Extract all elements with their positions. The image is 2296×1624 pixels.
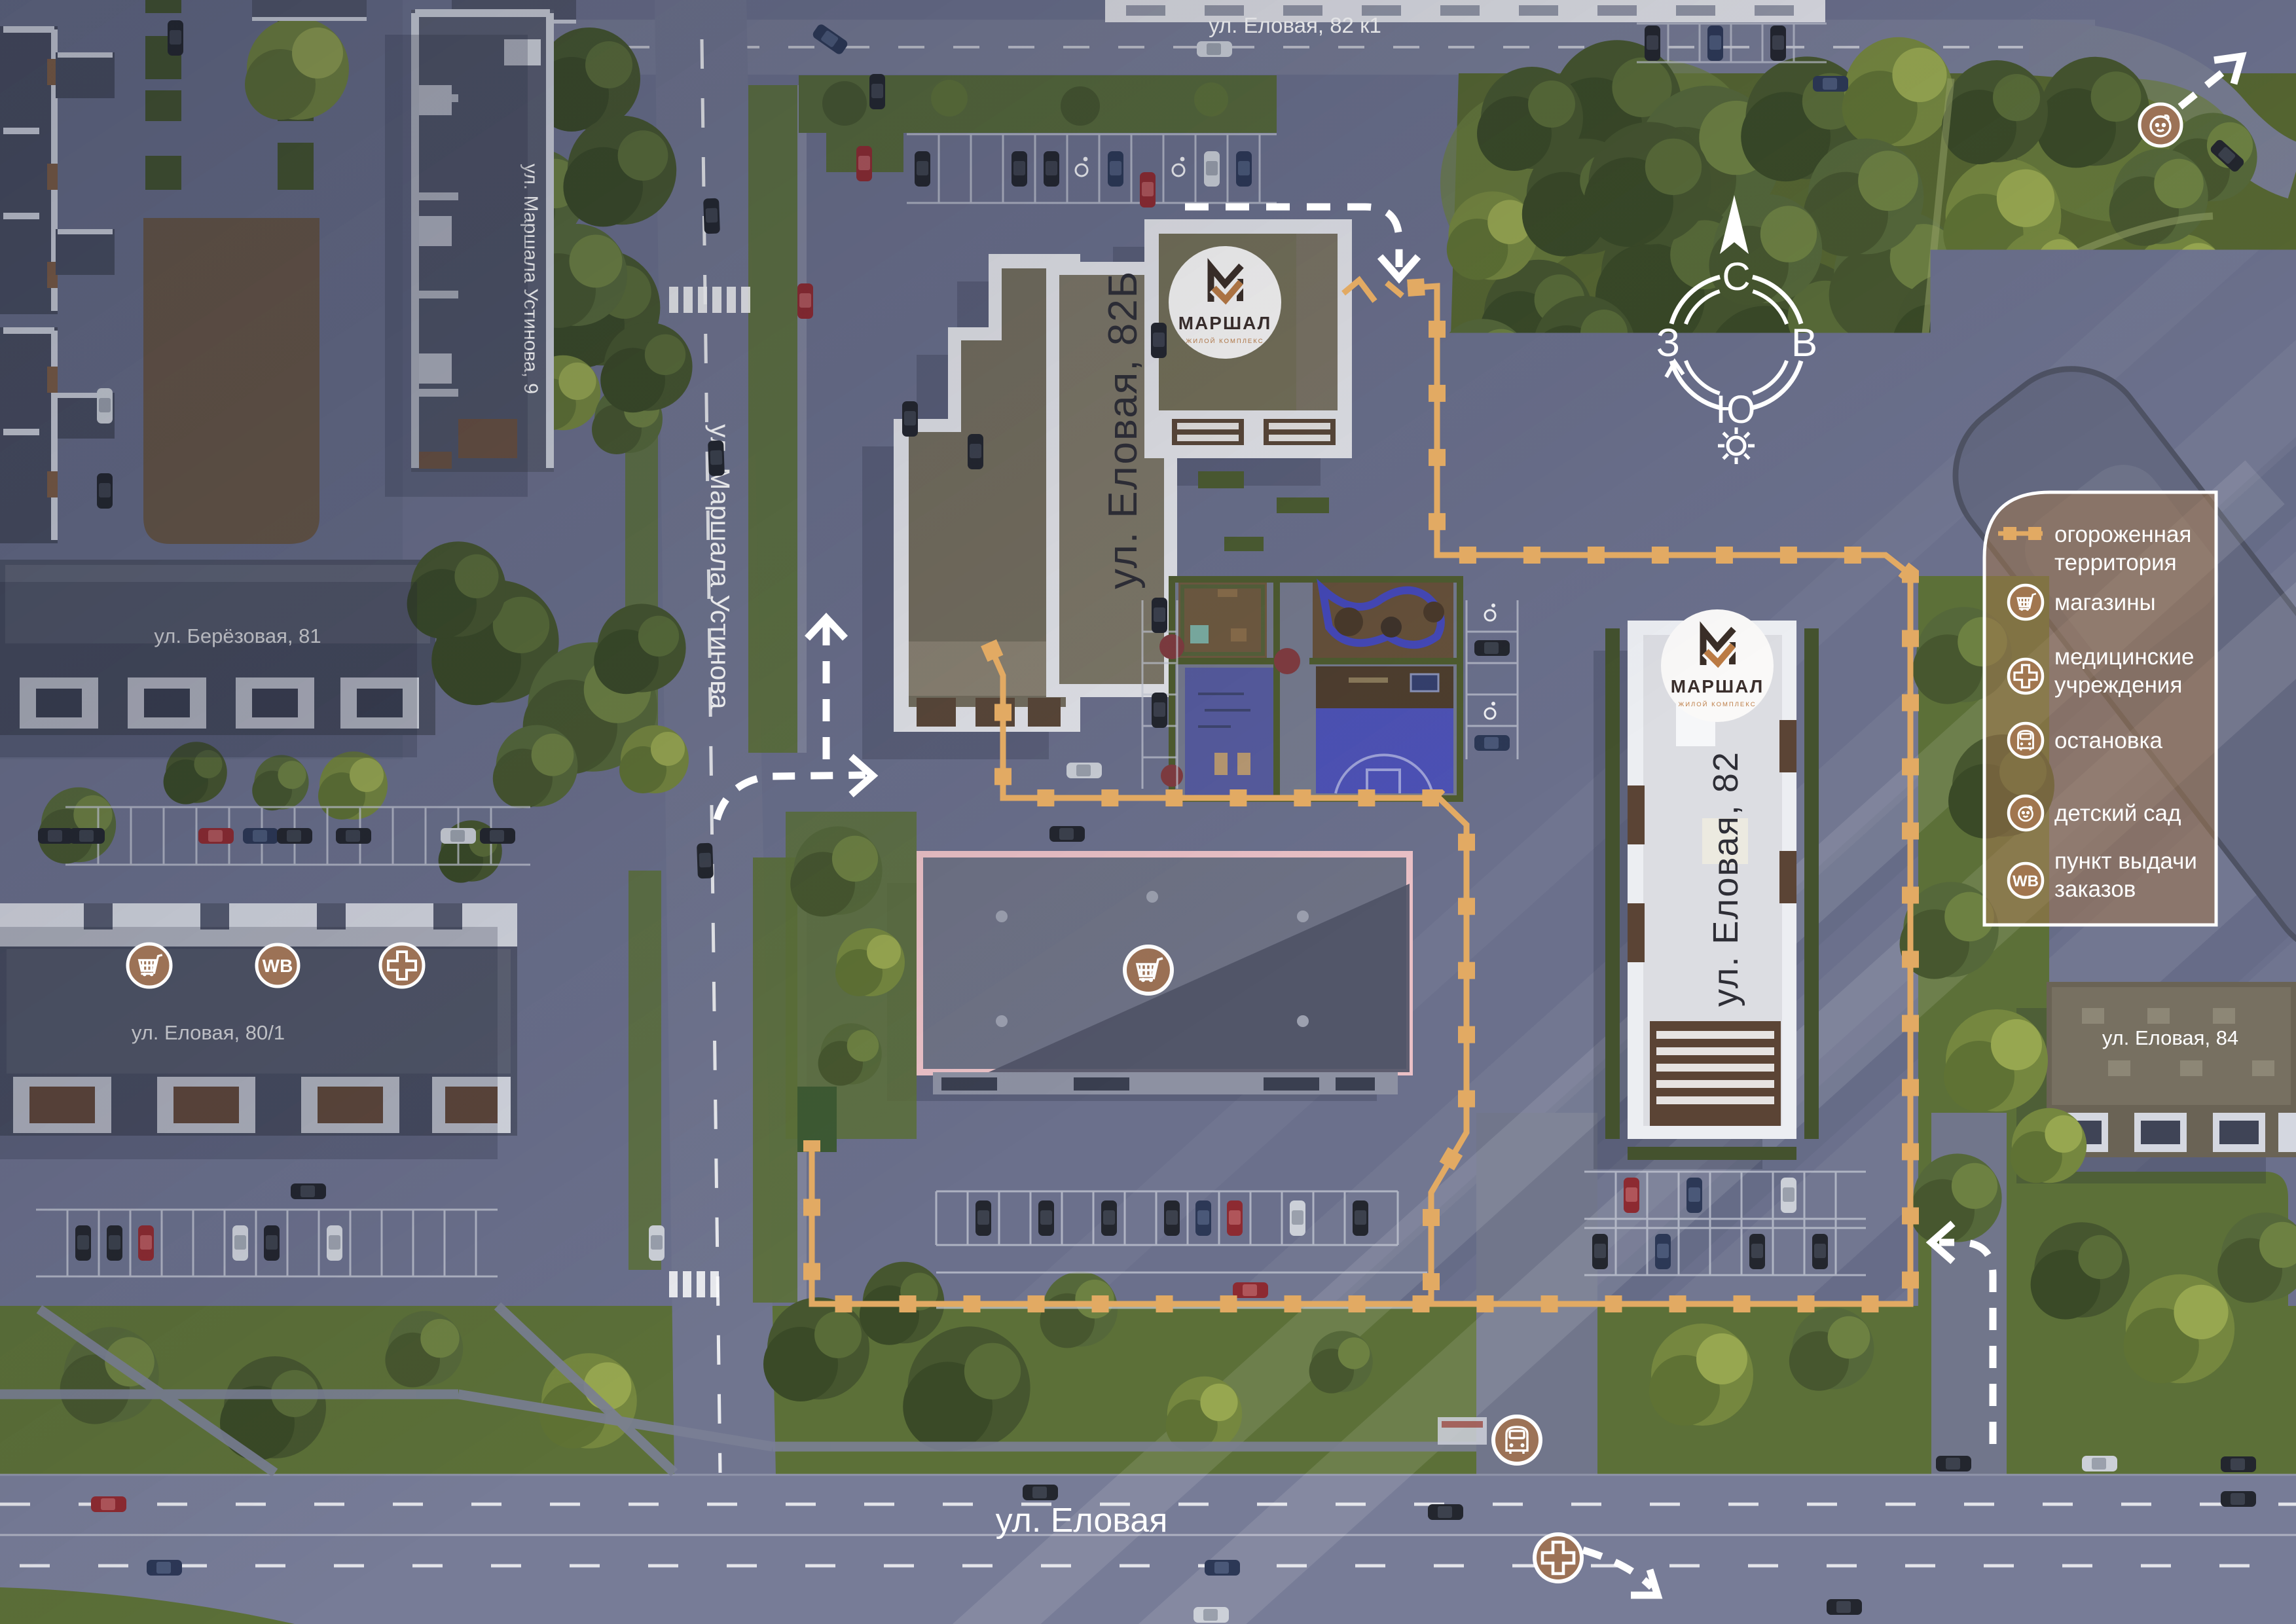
svg-text:остановка: остановка <box>2054 728 2163 753</box>
svg-text:пункт выдачи: пункт выдачи <box>2054 848 2197 874</box>
svg-text:магазины: магазины <box>2054 590 2156 615</box>
svg-text:медицинские: медицинские <box>2054 644 2195 670</box>
svg-text:детский сад: детский сад <box>2054 801 2181 826</box>
svg-text:WB: WB <box>2013 873 2039 890</box>
svg-text:З: З <box>1656 321 1680 365</box>
svg-text:огороженная: огороженная <box>2054 522 2191 547</box>
svg-text:В: В <box>1791 321 1817 365</box>
svg-text:территория: территория <box>2054 550 2177 575</box>
svg-text:С: С <box>1722 255 1750 298</box>
svg-text:учреждения: учреждения <box>2054 672 2182 698</box>
svg-text:Ю: Ю <box>1716 388 1756 431</box>
svg-text:заказов: заказов <box>2054 876 2136 902</box>
svg-text:WB: WB <box>263 956 293 976</box>
